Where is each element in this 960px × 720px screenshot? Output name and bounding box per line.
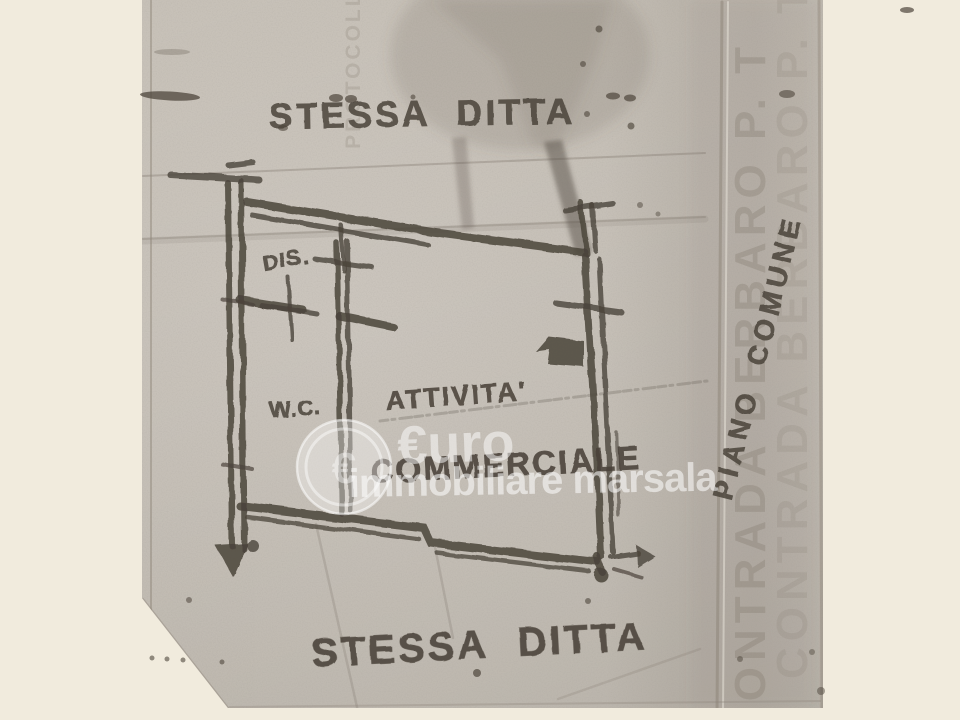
room-label-wc: W.C.	[269, 394, 322, 423]
wall-left-top-tick	[171, 175, 259, 180]
caption-top: STESSA DITTA	[268, 90, 575, 136]
watermark-brand-name: immobiliare marsala	[348, 456, 718, 506]
floor-plan-drawing: CONTRADA BERBARO P. T CONTRADA BERBARO P…	[0, 0, 960, 720]
wall-left-inner	[241, 181, 244, 549]
scanned-floor-plan-photo: CONTRADA BERBARO P. T CONTRADA BERBARO P…	[0, 0, 960, 720]
wall-left-outer	[228, 183, 232, 546]
